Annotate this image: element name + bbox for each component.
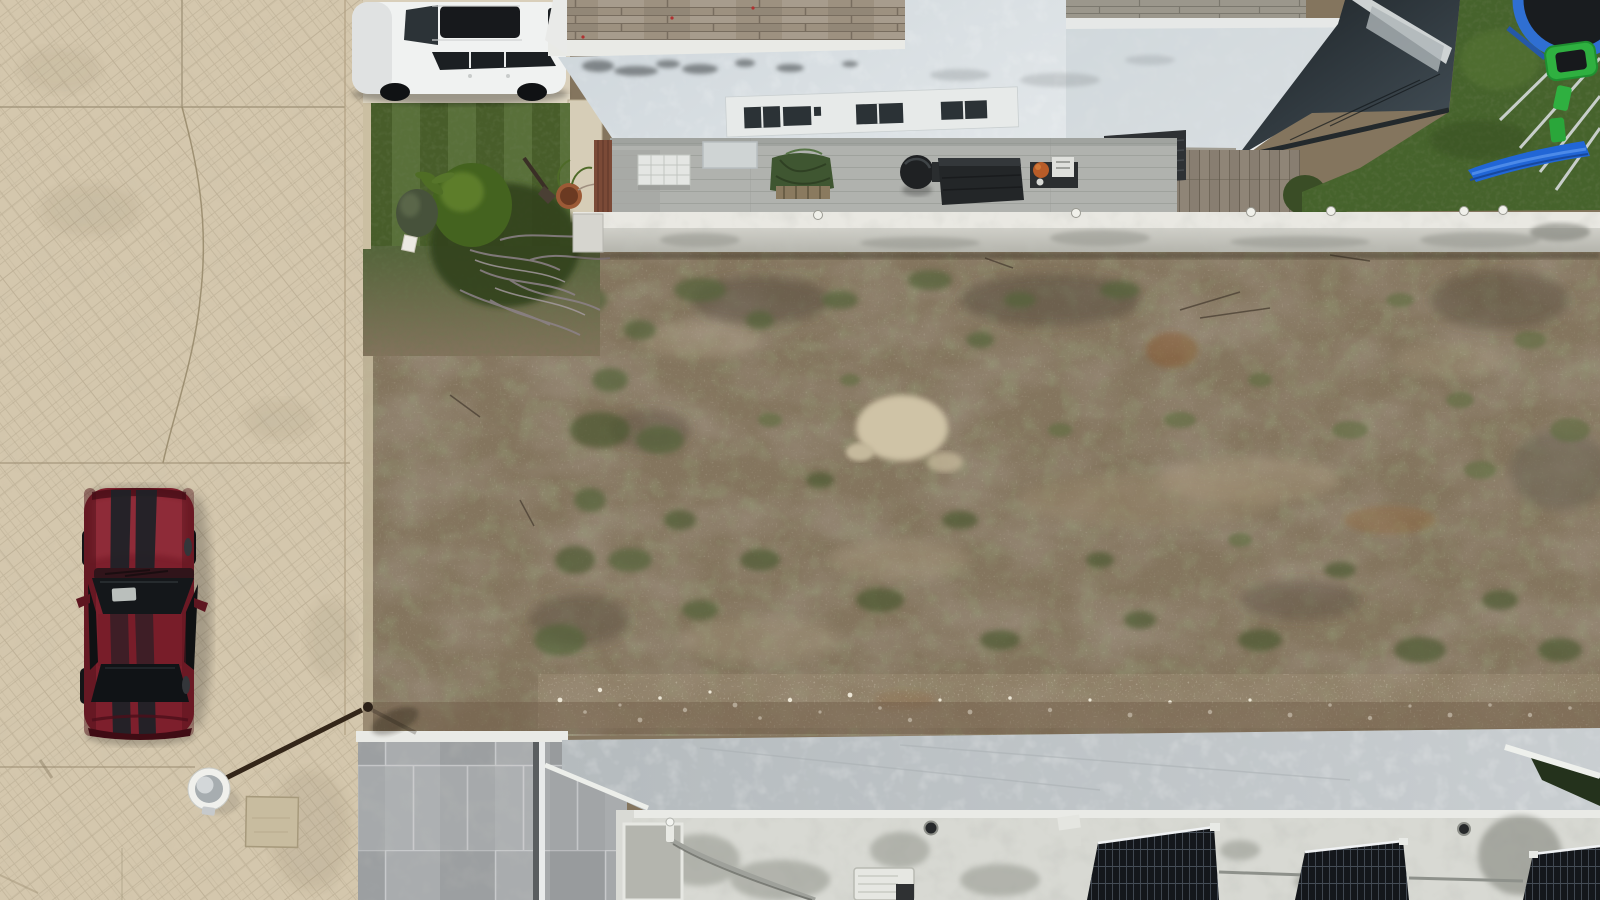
boundary-wall [573,206,1600,260]
ac-vent [896,884,914,900]
suv-windshield [404,5,438,45]
suv-front-wheel [380,83,410,101]
utility-pad [246,797,299,848]
street-pavement [0,0,366,900]
roof-drain [925,822,938,835]
roof-drain-2 [1458,823,1470,835]
solar-panel-3 [1523,846,1600,900]
dashboard-item [112,587,137,601]
white-box [1052,157,1074,177]
roof-shade [98,614,186,666]
car-windshield [92,578,194,614]
patio-door [703,142,757,168]
patio-ac-table [638,155,690,190]
roof-ac-unit [854,868,914,900]
suv-hood-shade [352,2,392,94]
aerial-photo-canvas [0,0,1600,900]
lot-curb-edge [363,345,373,735]
car-rear-window [91,664,189,702]
wall-end-block [573,214,603,252]
orange-ball [1033,162,1049,178]
lamp-lens [197,777,214,794]
lawn-curb [363,103,371,249]
junction-box-2 [1066,836,1081,846]
soil-band [363,702,1600,734]
pole-top [363,702,373,712]
patio [594,138,1177,218]
white-marker [401,235,417,252]
green-climber [1544,41,1598,82]
green-block-2 [1549,117,1566,142]
roof-seam [533,742,539,900]
white-suv [352,2,568,105]
clerestory-window-right [936,95,993,124]
window-small [814,107,821,116]
window [856,103,904,125]
patio-wall-shadow [610,138,1177,146]
suv-rear-wheel [517,83,547,101]
aerial-photo [0,0,1600,900]
storage-box [938,158,1024,205]
window [783,106,812,126]
wall-shadow [573,252,1600,259]
covered-furniture [770,150,834,200]
roof-seam-highlight [539,742,545,900]
red-sports-car [76,484,212,746]
weathered-roof [624,815,1600,900]
pavement-wear [0,0,366,900]
suv-sunroof [440,6,520,38]
bottom-roofs [356,728,1600,900]
